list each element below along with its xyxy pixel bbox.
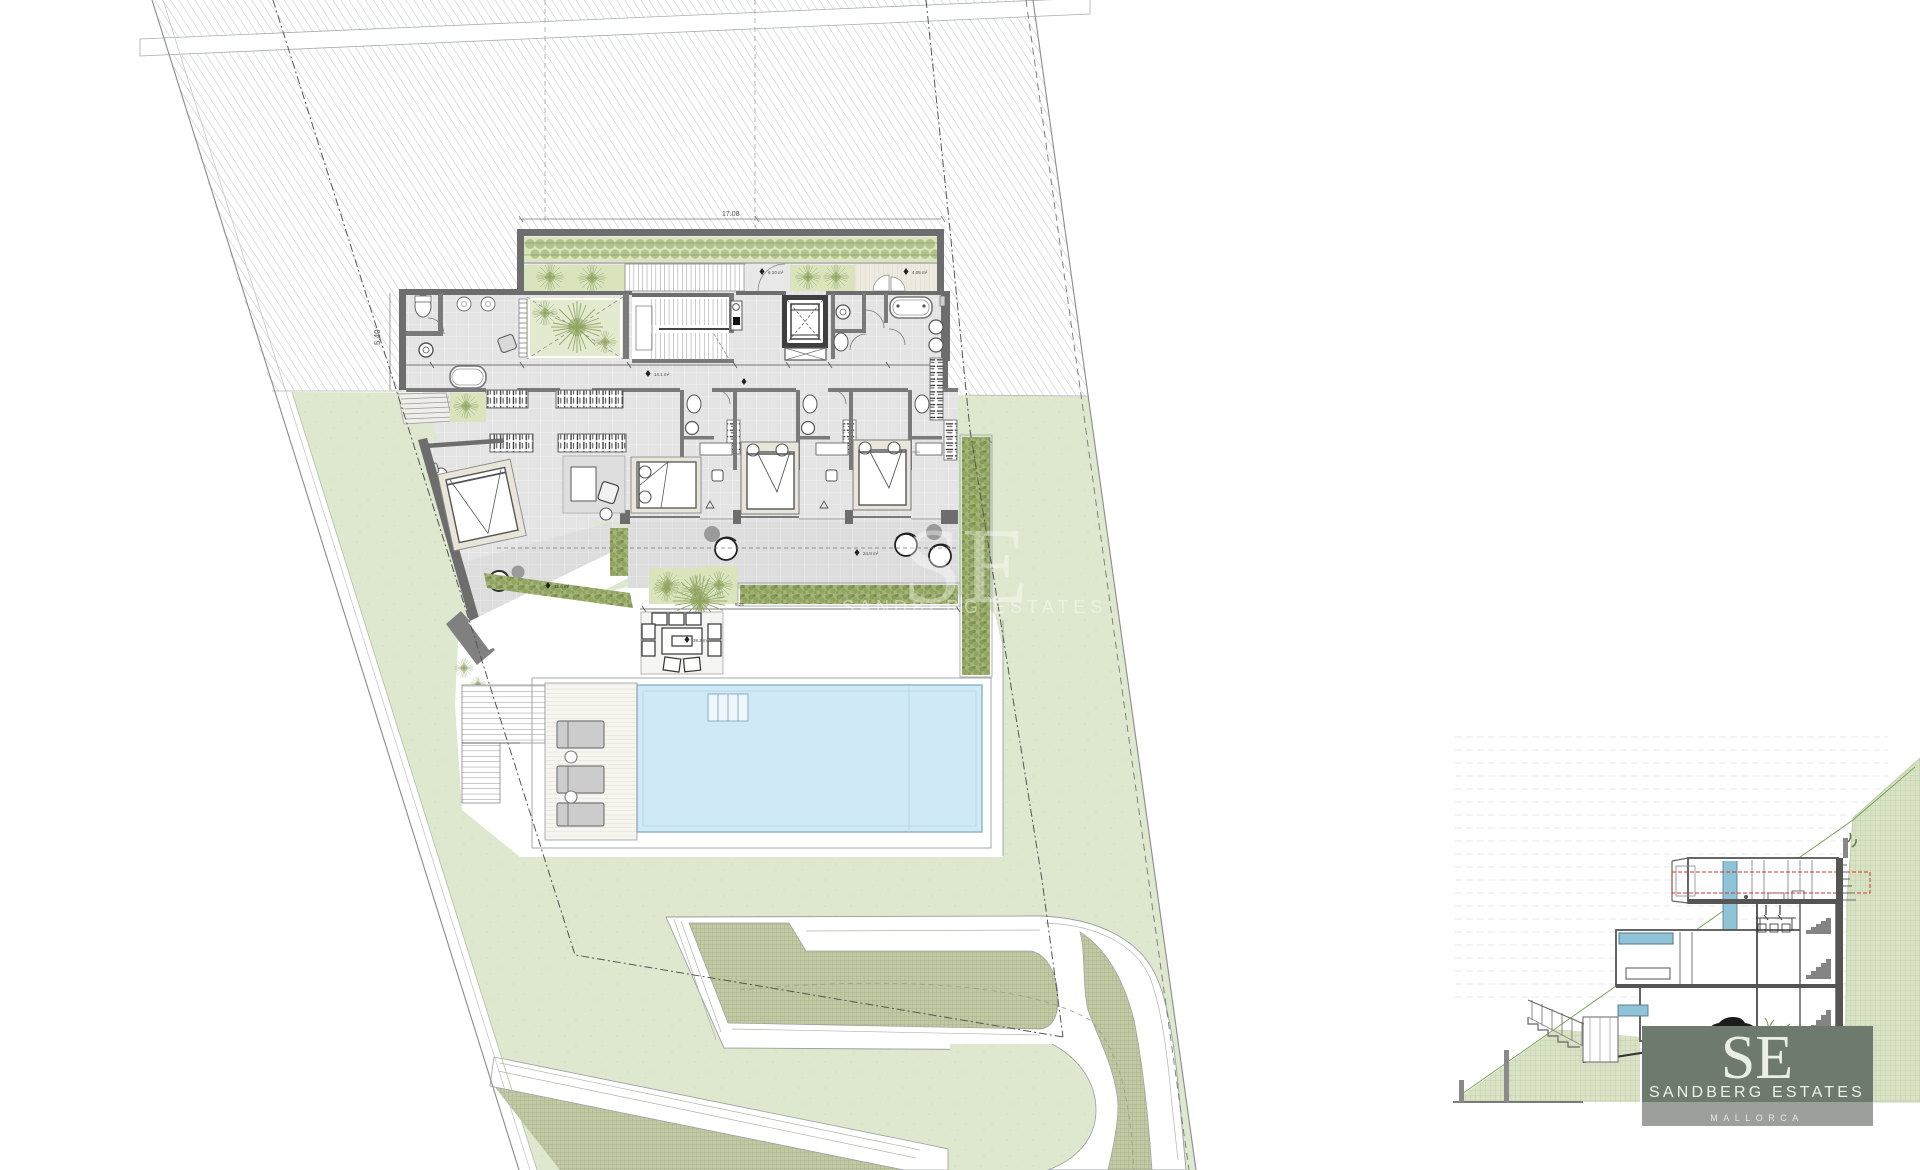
svg-text:24.9 m²: 24.9 m² — [863, 551, 879, 556]
svg-text:8.25: 8.25 — [735, 602, 744, 607]
svg-text:17.08: 17.08 — [722, 211, 740, 218]
svg-text:6.10 m²: 6.10 m² — [768, 270, 784, 275]
svg-text:38.2 m²: 38.2 m² — [693, 638, 709, 643]
svg-text:12.6 m²: 12.6 m² — [554, 584, 570, 589]
svg-text:SANDBERG ESTATES: SANDBERG ESTATES — [842, 597, 1107, 617]
svg-text:SANDBERG ESTATES: SANDBERG ESTATES — [1649, 1084, 1865, 1101]
svg-text:SE: SE — [1721, 1024, 1793, 1092]
svg-text:14.1 m²: 14.1 m² — [654, 372, 670, 377]
svg-text:4.05 m²: 4.05 m² — [912, 270, 928, 275]
svg-text:MALLORCA: MALLORCA — [1710, 1113, 1804, 1123]
